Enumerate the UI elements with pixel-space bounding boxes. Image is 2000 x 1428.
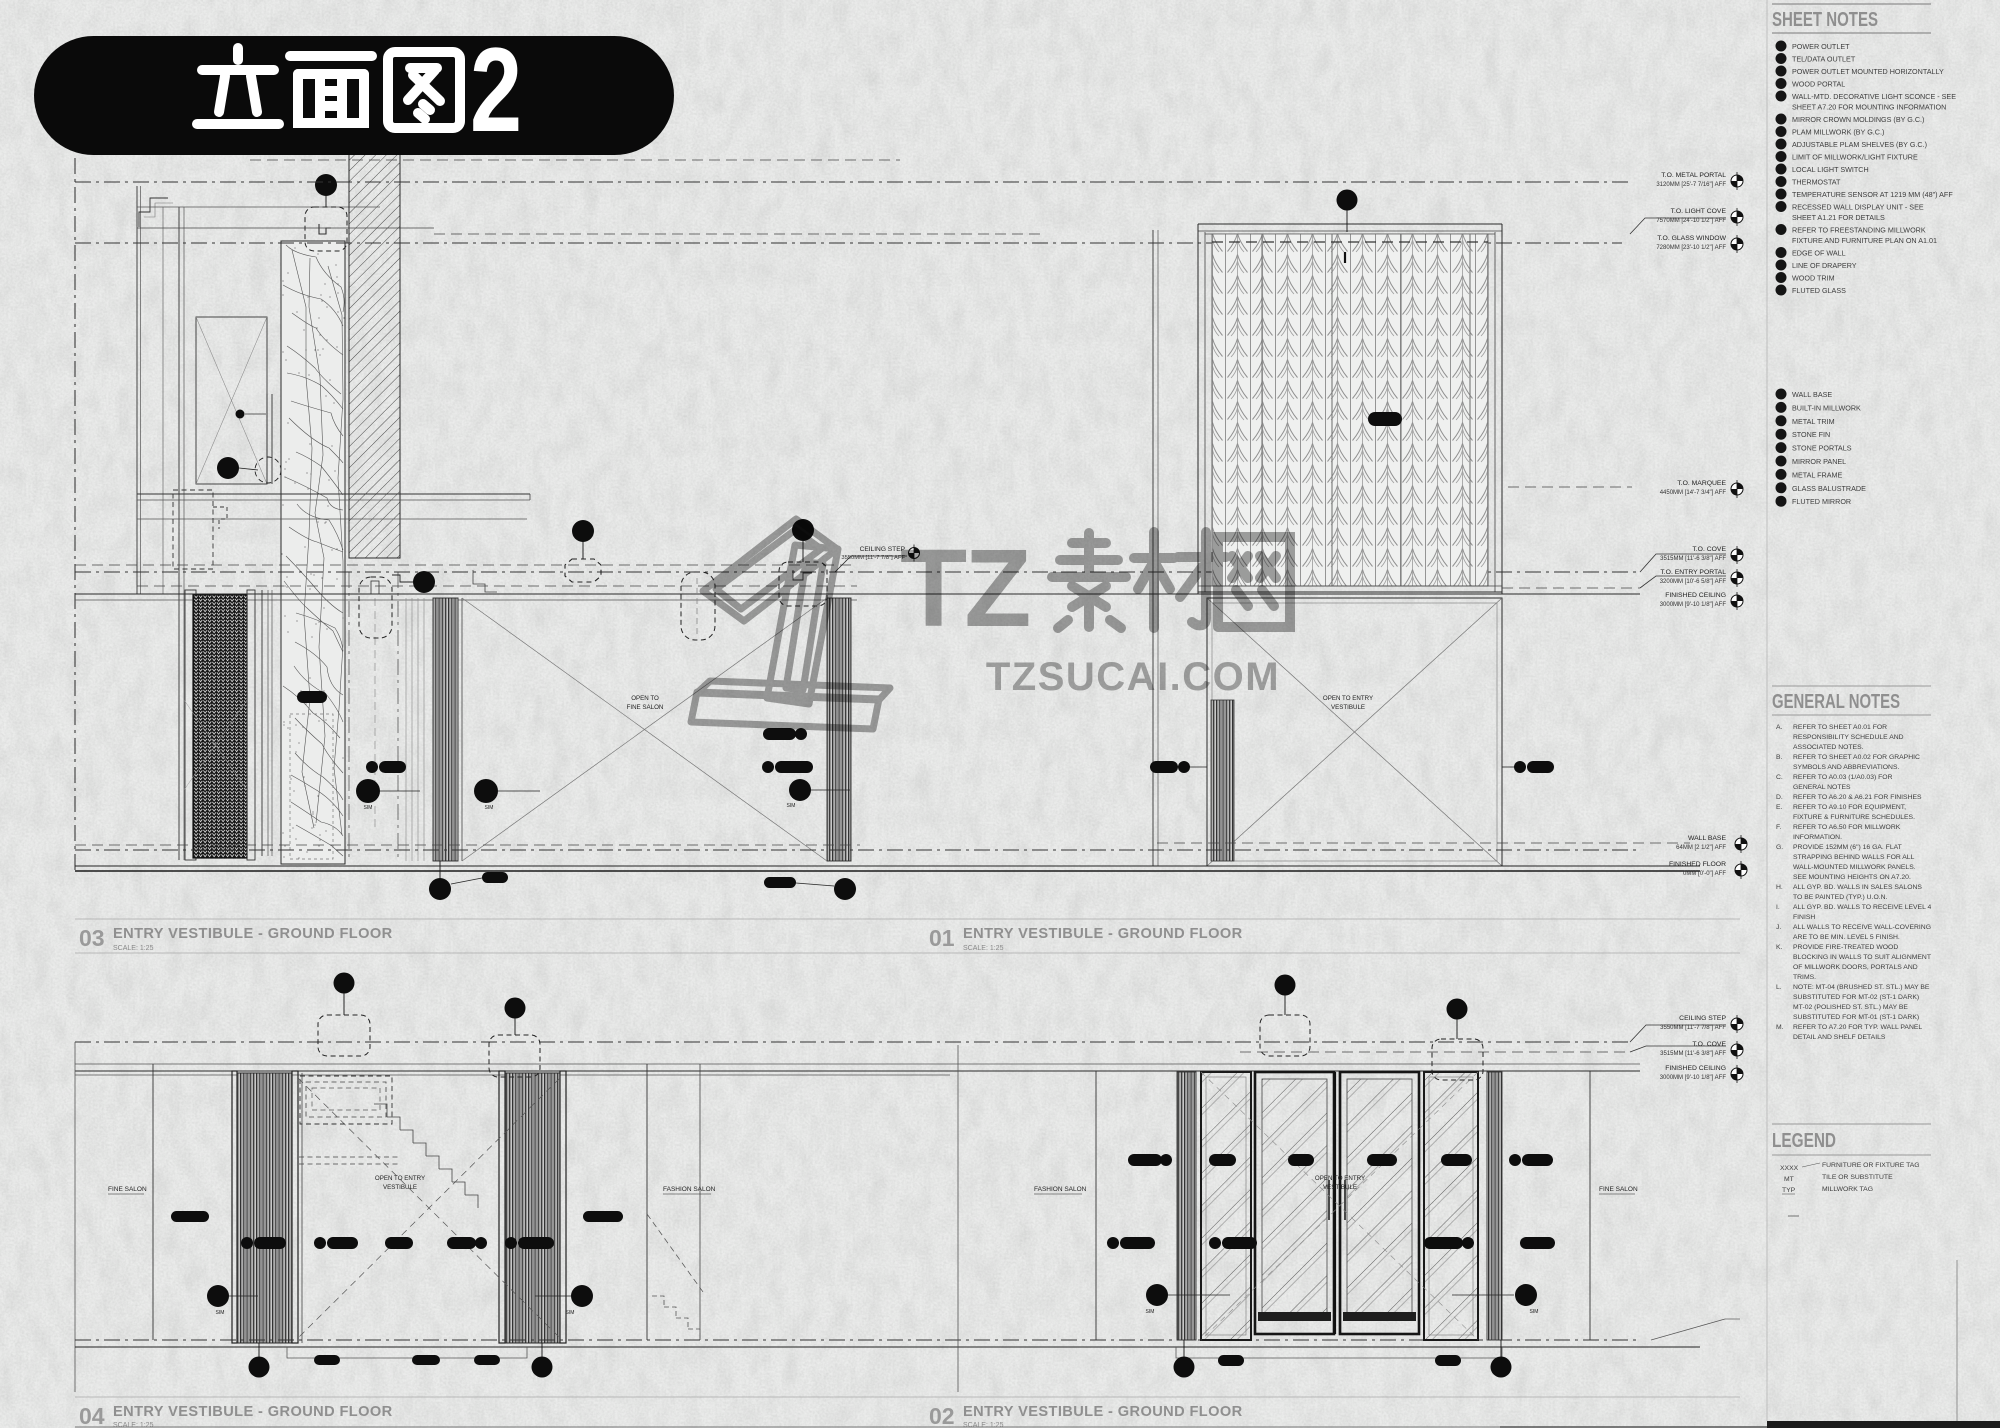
svg-text:VESTIBULE: VESTIBULE: [1323, 1184, 1357, 1191]
svg-text:EDGE OF WALL: EDGE OF WALL: [1792, 249, 1846, 258]
svg-text:SIM: SIM: [1530, 1309, 1539, 1315]
svg-text:WALL-MOUNTED MILLWORK PANELS.: WALL-MOUNTED MILLWORK PANELS.: [1793, 864, 1916, 871]
svg-text:T.O. ENTRY PORTAL: T.O. ENTRY PORTAL: [1660, 569, 1726, 576]
svg-text:THERMOSTAT: THERMOSTAT: [1792, 178, 1841, 187]
svg-text:ADJUSTABLE PLAM SHELVES (BY G.: ADJUSTABLE PLAM SHELVES (BY G.C.): [1792, 140, 1927, 149]
svg-text:STONE PORTALS: STONE PORTALS: [1792, 444, 1852, 453]
svg-text:STONE FIN: STONE FIN: [1792, 430, 1830, 439]
svg-text:SEE MOUNTING HEIGHTS ON A7.20.: SEE MOUNTING HEIGHTS ON A7.20.: [1793, 874, 1911, 881]
svg-text:TRIMS.: TRIMS.: [1793, 974, 1816, 981]
svg-text:3515MM [11'-6 3/8"] AFF: 3515MM [11'-6 3/8"] AFF: [1660, 1051, 1726, 1057]
svg-text:ENTRY VESTIBULE - GROUND FLOOR: ENTRY VESTIBULE - GROUND FLOOR: [113, 926, 393, 942]
svg-text:OPEN TO ENTRY: OPEN TO ENTRY: [1315, 1175, 1365, 1182]
svg-text:04: 04: [79, 1403, 105, 1428]
svg-text:MIRROR PANEL: MIRROR PANEL: [1792, 457, 1846, 466]
svg-text:FINISHED CEILING: FINISHED CEILING: [1665, 1065, 1726, 1072]
svg-text:MT: MT: [1784, 1176, 1794, 1183]
svg-text:FLUTED GLASS: FLUTED GLASS: [1792, 286, 1846, 295]
svg-text:NOTE: MT-04 (BRUSHED ST. STL.): NOTE: MT-04 (BRUSHED ST. STL.) MAY BE: [1793, 984, 1930, 991]
svg-text:3550MM [11'-7 7/8"] AFF: 3550MM [11'-7 7/8"] AFF: [841, 555, 905, 561]
svg-text:SHEET A7.20 FOR MOUNTING INFOR: SHEET A7.20 FOR MOUNTING INFORMATION: [1792, 103, 1946, 112]
svg-text:LINE OF DRAPERY: LINE OF DRAPERY: [1792, 261, 1857, 270]
svg-text:T.O. COVE: T.O. COVE: [1692, 546, 1726, 553]
svg-text:D.: D.: [1776, 794, 1783, 801]
svg-text:SCALE: 1:25: SCALE: 1:25: [113, 945, 154, 952]
svg-text:F.: F.: [1776, 824, 1781, 831]
svg-text:C.: C.: [1776, 774, 1783, 781]
svg-text:MILLWORK TAG: MILLWORK TAG: [1822, 1186, 1873, 1193]
svg-text:ASSOCIATED NOTES.: ASSOCIATED NOTES.: [1793, 744, 1864, 751]
svg-text:OPEN TO: OPEN TO: [631, 695, 659, 702]
svg-text:TO BE PAINTED (TYP.) U.O.N.: TO BE PAINTED (TYP.) U.O.N.: [1793, 894, 1888, 901]
svg-text:T.O. COVE: T.O. COVE: [1692, 1041, 1726, 1048]
svg-text:ENTRY VESTIBULE - GROUND FLOOR: ENTRY VESTIBULE - GROUND FLOOR: [963, 1404, 1243, 1420]
svg-text:REFER TO A7.20 FOR TYP. WALL P: REFER TO A7.20 FOR TYP. WALL PANEL: [1793, 1024, 1922, 1031]
svg-text:3000MM [9'-10 1/8"] AFF: 3000MM [9'-10 1/8"] AFF: [1660, 602, 1727, 608]
svg-text:03: 03: [79, 925, 105, 951]
svg-text:WALL BASE: WALL BASE: [1688, 835, 1726, 842]
svg-text:SIM: SIM: [216, 1310, 225, 1316]
svg-text:TEL/DATA OUTLET: TEL/DATA OUTLET: [1792, 55, 1856, 64]
svg-text:SCALE: 1:25: SCALE: 1:25: [963, 945, 1004, 952]
svg-text:REFER TO A0.03 (1/A0.03) FOR: REFER TO A0.03 (1/A0.03) FOR: [1793, 774, 1893, 781]
svg-text:B.: B.: [1776, 754, 1783, 761]
svg-text:TILE OR SUBSTITUTE: TILE OR SUBSTITUTE: [1822, 1174, 1893, 1181]
svg-text:REFER TO FREESTANDING MILLWORK: REFER TO FREESTANDING MILLWORK: [1792, 226, 1926, 235]
svg-text:RECESSED WALL DISPLAY UNIT - S: RECESSED WALL DISPLAY UNIT - SEE: [1792, 203, 1924, 212]
svg-text:FINISHED FLOOR: FINISHED FLOOR: [1669, 861, 1726, 868]
svg-text:REFER TO A6.20 & A6.21 FOR FIN: REFER TO A6.20 & A6.21 FOR FINISHES: [1793, 794, 1922, 801]
svg-text:MT-02 (POLISHED ST. STL.) MAY: MT-02 (POLISHED ST. STL.) MAY BE: [1793, 1004, 1908, 1011]
svg-text:TZSUCAI.COM: TZSUCAI.COM: [986, 655, 1280, 699]
svg-text:FLUTED MIRROR: FLUTED MIRROR: [1792, 497, 1851, 506]
svg-text:G.: G.: [1776, 844, 1783, 851]
svg-text:ALL WALLS TO RECEIVE WALL-COVE: ALL WALLS TO RECEIVE WALL-COVERING: [1793, 924, 1931, 931]
svg-text:OF MILLWORK DOORS, PORTALS AND: OF MILLWORK DOORS, PORTALS AND: [1793, 964, 1918, 971]
svg-text:REFER TO SHEET A0.02 FOR GRAPH: REFER TO SHEET A0.02 FOR GRAPHIC: [1793, 754, 1920, 761]
svg-text:POWER OUTLET: POWER OUTLET: [1792, 42, 1850, 51]
svg-text:TZ: TZ: [900, 527, 1029, 650]
svg-text:FINE SALON: FINE SALON: [108, 1186, 147, 1193]
svg-text:SYMBOLS AND ABBREVIATIONS.: SYMBOLS AND ABBREVIATIONS.: [1793, 764, 1900, 771]
svg-text:ALL GYP. BD. WALLS TO RECEIVE: ALL GYP. BD. WALLS TO RECEIVE LEVEL 4: [1793, 904, 1931, 911]
svg-text:METAL TRIM: METAL TRIM: [1792, 417, 1835, 426]
svg-text:SIM: SIM: [787, 803, 796, 809]
svg-text:01: 01: [929, 925, 955, 951]
svg-text:FURNITURE OR FIXTURE TAG: FURNITURE OR FIXTURE TAG: [1822, 1162, 1920, 1169]
svg-text:K.: K.: [1776, 944, 1783, 951]
svg-text:REFER TO A9.10 FOR EQUIPMENT,: REFER TO A9.10 FOR EQUIPMENT,: [1793, 804, 1906, 811]
svg-text:J.: J.: [1776, 924, 1781, 931]
svg-text:WOOD TRIM: WOOD TRIM: [1792, 274, 1835, 283]
svg-text:ALL GYP. BD. WALLS IN SALES SA: ALL GYP. BD. WALLS IN SALES SALONS: [1793, 884, 1922, 891]
svg-text:XXXX: XXXX: [1780, 1165, 1799, 1172]
svg-text:ENTRY VESTIBULE - GROUND FLOOR: ENTRY VESTIBULE - GROUND FLOOR: [963, 926, 1243, 942]
svg-text:METAL FRAME: METAL FRAME: [1792, 470, 1843, 479]
svg-text:LIMIT OF MILLWORK/LIGHT FIXTUR: LIMIT OF MILLWORK/LIGHT FIXTURE: [1792, 153, 1918, 162]
svg-text:CEILING STEP: CEILING STEP: [860, 546, 906, 553]
svg-text:02: 02: [929, 1403, 955, 1428]
svg-text:INFORMATION.: INFORMATION.: [1793, 834, 1842, 841]
svg-text:VESTIBULE: VESTIBULE: [1331, 704, 1365, 711]
svg-text:LOCAL LIGHT SWITCH: LOCAL LIGHT SWITCH: [1792, 165, 1869, 174]
svg-text:REFER TO SHEET A0.01 FOR: REFER TO SHEET A0.01 FOR: [1793, 724, 1887, 731]
svg-text:SIM: SIM: [364, 805, 373, 811]
svg-text:ARE TO BE MIN. LEVEL 5 FINISH.: ARE TO BE MIN. LEVEL 5 FINISH.: [1793, 934, 1900, 941]
svg-text:TYP: TYP: [1782, 1187, 1796, 1194]
svg-text:TEMPERATURE SENSOR AT 1219 MM: TEMPERATURE SENSOR AT 1219 MM (48") AFF: [1792, 190, 1953, 199]
svg-text:CEILING STEP: CEILING STEP: [1679, 1015, 1726, 1022]
svg-text:H.: H.: [1776, 884, 1783, 891]
svg-text:E.: E.: [1776, 804, 1783, 811]
svg-text:LEGEND: LEGEND: [1772, 1130, 1836, 1152]
svg-text:WALL BASE: WALL BASE: [1792, 390, 1832, 399]
svg-text:SUBSTITUTED FOR MT-02 (ST-1 DA: SUBSTITUTED FOR MT-02 (ST-1 DARK): [1793, 994, 1919, 1001]
svg-text:3515MM [11'-6 3/8"] AFF: 3515MM [11'-6 3/8"] AFF: [1660, 556, 1726, 562]
svg-text:SUBSTITUTED FOR MT-01 (ST-1 DA: SUBSTITUTED FOR MT-01 (ST-1 DARK): [1793, 1014, 1919, 1021]
svg-text:OPEN TO ENTRY: OPEN TO ENTRY: [1323, 695, 1373, 702]
svg-text:7570MM [24'-10 1/2"] AFF: 7570MM [24'-10 1/2"] AFF: [1656, 218, 1726, 224]
svg-text:2: 2: [470, 23, 522, 157]
svg-text:SHEET NOTES: SHEET NOTES: [1772, 9, 1878, 31]
svg-text:3120MM [25'-7 7/16"] AFF: 3120MM [25'-7 7/16"] AFF: [1656, 182, 1726, 188]
svg-text:STRAPPING BEHIND WALLS FOR ALL: STRAPPING BEHIND WALLS FOR ALL: [1793, 854, 1915, 861]
svg-text:VESTIBULE: VESTIBULE: [383, 1184, 417, 1191]
svg-text:FINE SALON: FINE SALON: [627, 704, 664, 711]
svg-text:SIM: SIM: [1146, 1309, 1155, 1315]
svg-text:T.O. LIGHT COVE: T.O. LIGHT COVE: [1671, 208, 1727, 215]
svg-text:GENERAL NOTES: GENERAL NOTES: [1793, 784, 1851, 791]
svg-text:SHEET A1.21 FOR DETAILS: SHEET A1.21 FOR DETAILS: [1792, 213, 1885, 222]
svg-text:FINISHED CEILING: FINISHED CEILING: [1665, 592, 1726, 599]
svg-text:0MM [0'-0"] AFF: 0MM [0'-0"] AFF: [1683, 871, 1726, 877]
svg-text:GENERAL NOTES: GENERAL NOTES: [1772, 691, 1900, 713]
svg-text:T.O. MARQUEE: T.O. MARQUEE: [1677, 480, 1726, 487]
svg-text:RESPONSIBILITY SCHEDULE AND: RESPONSIBILITY SCHEDULE AND: [1793, 734, 1904, 741]
svg-text:BUILT-IN MILLWORK: BUILT-IN MILLWORK: [1792, 403, 1861, 412]
svg-text:I.: I.: [1776, 904, 1780, 911]
svg-text:BLOCKING IN WALLS TO SUIT ALIG: BLOCKING IN WALLS TO SUIT ALIGNMENT: [1793, 954, 1931, 961]
svg-text:T.O. GLASS WINDOW: T.O. GLASS WINDOW: [1657, 235, 1726, 242]
svg-text:M.: M.: [1776, 1024, 1784, 1031]
svg-text:FASHION SALON: FASHION SALON: [1034, 1186, 1087, 1193]
svg-text:ENTRY VESTIBULE - GROUND FLOOR: ENTRY VESTIBULE - GROUND FLOOR: [113, 1404, 393, 1420]
svg-text:MIRROR CROWN MOLDINGS (BY G.C.: MIRROR CROWN MOLDINGS (BY G.C.): [1792, 115, 1924, 124]
svg-text:GLASS BALUSTRADE: GLASS BALUSTRADE: [1792, 484, 1866, 493]
svg-text:FINE SALON: FINE SALON: [1599, 1186, 1638, 1193]
svg-text:4450MM [14'-7 3/4"] AFF: 4450MM [14'-7 3/4"] AFF: [1660, 490, 1727, 496]
svg-text:3550MM [11'-7 7/8"] AFF: 3550MM [11'-7 7/8"] AFF: [1660, 1025, 1726, 1031]
svg-text:A.: A.: [1776, 724, 1783, 731]
svg-text:SIM: SIM: [566, 1310, 575, 1316]
svg-text:FASHION SALON: FASHION SALON: [663, 1186, 716, 1193]
svg-text:3200MM [10'-6 5/8"] AFF: 3200MM [10'-6 5/8"] AFF: [1660, 579, 1727, 585]
svg-text:FINISH: FINISH: [1793, 914, 1815, 921]
svg-text:FIXTURE AND FURNITURE PLAN ON: FIXTURE AND FURNITURE PLAN ON A1.01: [1792, 236, 1937, 245]
svg-text:WOOD PORTAL: WOOD PORTAL: [1792, 80, 1845, 89]
svg-text:WALL-MTD. DECORATIVE LIGHT SCO: WALL-MTD. DECORATIVE LIGHT SCONCE - SEE: [1792, 92, 1956, 101]
svg-text:T.O. METAL PORTAL: T.O. METAL PORTAL: [1661, 172, 1726, 179]
svg-text:OPEN TO ENTRY: OPEN TO ENTRY: [375, 1175, 425, 1182]
svg-text:64MM [2 1/2"] AFF: 64MM [2 1/2"] AFF: [1676, 845, 1726, 851]
svg-text:FIXTURE & FURNITURE SCHEDULES.: FIXTURE & FURNITURE SCHEDULES.: [1793, 814, 1915, 821]
svg-text:PROVIDE FIRE-TREATED WOOD: PROVIDE FIRE-TREATED WOOD: [1793, 944, 1898, 951]
svg-text:POWER OUTLET MOUNTED HORIZONTA: POWER OUTLET MOUNTED HORIZONTALLY: [1792, 67, 1944, 76]
svg-text:DETAIL AND SHELF DETAILS: DETAIL AND SHELF DETAILS: [1793, 1034, 1886, 1041]
svg-text:SIM: SIM: [485, 805, 494, 811]
svg-text:PROVIDE 152MM (6") 16 GA. FLAT: PROVIDE 152MM (6") 16 GA. FLAT: [1793, 844, 1902, 851]
svg-text:7280MM [23'-10 1/2"] AFF: 7280MM [23'-10 1/2"] AFF: [1656, 245, 1726, 251]
svg-text:REFER TO A6.50 FOR MILLWORK: REFER TO A6.50 FOR MILLWORK: [1793, 824, 1901, 831]
svg-text:3000MM [9'-10 1/8"] AFF: 3000MM [9'-10 1/8"] AFF: [1660, 1075, 1727, 1081]
svg-text:PLAM MILLWORK (BY G.C.): PLAM MILLWORK (BY G.C.): [1792, 128, 1884, 137]
svg-text:L.: L.: [1776, 984, 1782, 991]
